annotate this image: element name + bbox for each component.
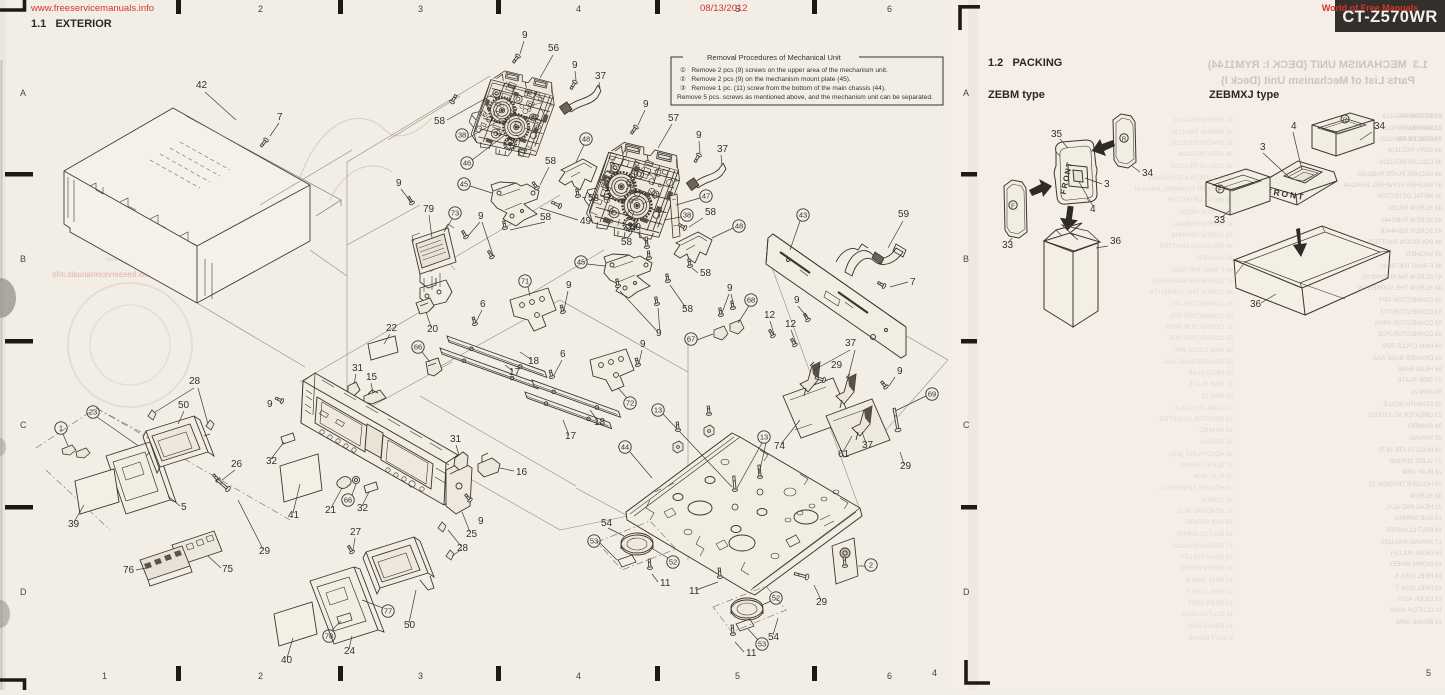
svg-text:Parts List of Mechanism Unit (: Parts List of Mechanism Unit (Deck I) (1221, 75, 1415, 87)
svg-text:A: A (20, 88, 26, 98)
svg-text:26: 26 (231, 459, 243, 470)
svg-text:ZEBMXJ type: ZEBMXJ type (1209, 89, 1279, 101)
svg-text:9: 9 (897, 366, 903, 377)
svg-text:21: 21 (325, 505, 337, 516)
svg-text:46: 46 (463, 159, 471, 168)
svg-text:13: 13 (654, 406, 662, 415)
svg-text:R: R (1343, 118, 1348, 124)
svg-text:11 CLUTCH ASSY: 11 CLUTCH ASSY (1180, 611, 1233, 618)
svg-text:49: 49 (580, 216, 592, 227)
svg-text:23 GREATER ADJUSTED: 23 GREATER ADJUSTED (1368, 412, 1442, 419)
svg-text:17 SPRING RXA1100: 17 SPRING RXA1100 (1171, 543, 1233, 550)
svg-text:53: 53 (590, 537, 598, 546)
svg-text:③ Remove 1 pc. (11) screw fr: ③ Remove 1 pc. (11) screw from the botto… (680, 84, 886, 92)
svg-text:34 SERV REC1108: 34 SERV REC1108 (1178, 151, 1233, 158)
svg-text:75: 75 (222, 564, 234, 575)
svg-text:24 SHIMRO: 24 SHIMRO (1408, 423, 1442, 430)
svg-text:53 CONNECTOR PCE: 53 CONNECTOR PCE (1378, 331, 1442, 338)
svg-text:36 SECURE PLATE RNB1451: 36 SECURE PLATE RNB1451 (1356, 171, 1442, 178)
svg-text:21 HEAD PAD ALYL: 21 HEAD PAD ALYL (1176, 508, 1233, 515)
svg-text:6: 6 (560, 349, 566, 360)
svg-text:7: 7 (910, 277, 916, 288)
svg-text:27 SLIDE SPRING: 27 SLIDE SPRING (1180, 462, 1233, 469)
svg-text:9: 9 (640, 339, 646, 350)
svg-text:43 SCREW RBH4418: 43 SCREW RBH4418 (1171, 232, 1233, 239)
svg-text:12: 12 (764, 310, 776, 321)
svg-text:9: 9 (566, 280, 572, 291)
svg-text:49: 49 (630, 222, 642, 233)
svg-text:08/13/2012: 08/13/2012 (700, 3, 748, 14)
svg-text:57: 57 (668, 113, 680, 124)
svg-text:25 SPRING: 25 SPRING (1200, 439, 1233, 446)
svg-text:68: 68 (747, 296, 755, 305)
svg-text:2: 2 (258, 4, 263, 14)
svg-text:9: 9 (478, 516, 484, 527)
svg-text:56 HEAD BASE: 56 HEAD BASE (1188, 370, 1233, 377)
svg-text:B: B (20, 254, 26, 264)
svg-text:16 GEAR PULLEY: 16 GEAR PULLEY (1180, 554, 1233, 561)
svg-text:52: 52 (772, 594, 780, 603)
svg-text:30 SCREW: 30 SCREW (1201, 497, 1233, 504)
svg-text:1: 1 (102, 671, 107, 681)
svg-text:35: 35 (1051, 129, 1063, 140)
svg-text:66: 66 (344, 496, 352, 505)
svg-text:58: 58 (540, 212, 552, 223)
svg-text:4: 4 (932, 668, 937, 678)
svg-text:26 HOLD PLATE (B R): 26 HOLD PLATE (B R) (1169, 451, 1233, 458)
svg-text:37: 37 (862, 440, 874, 451)
svg-text:5: 5 (1426, 668, 1431, 678)
svg-text:1.3 MECHANISM UNIT (DECK I: R: 1.3 MECHANISM UNIT (DECK I: RYM1144) (1208, 59, 1429, 71)
svg-text:74: 74 (774, 441, 786, 452)
svg-text:41 SCREW RBZ30: 41 SCREW RBZ30 (1388, 205, 1442, 212)
svg-text:45 WASHER: 45 WASHER (1405, 251, 1442, 258)
svg-text:52 CONNECTOR P8HS: 52 CONNECTOR P8HS (1166, 324, 1233, 331)
svg-text:27 SLIDE SPRING: 27 SLIDE SPRING (1389, 458, 1442, 465)
svg-text:44 POLISLION SHUTTER: 44 POLISLION SHUTTER (1368, 239, 1442, 246)
svg-text:1.2 PACKING: 1.2 PACKING (988, 57, 1062, 69)
svg-text:27: 27 (350, 527, 362, 538)
svg-text:76: 76 (123, 565, 135, 576)
svg-text:28: 28 (189, 376, 201, 387)
svg-text:50: 50 (404, 620, 416, 631)
svg-text:48: 48 (582, 135, 590, 144)
svg-text:9: 9 (572, 60, 578, 71)
svg-text:59: 59 (898, 209, 910, 220)
svg-text:24 SHIMRO: 24 SHIMRO (1199, 427, 1233, 434)
svg-text:46 F RING THE RB30: 46 F RING THE RB30 (1171, 267, 1233, 274)
svg-text:58 ARM 21: 58 ARM 21 (1410, 389, 1442, 396)
svg-text:9: 9 (643, 99, 649, 110)
svg-text:55 DRAWER BASE ASA: 55 DRAWER BASE ASA (1163, 359, 1233, 366)
svg-text:47: 47 (702, 192, 710, 201)
svg-text:18 BELT CLAMPER: 18 BELT CLAMPER (1385, 527, 1442, 534)
svg-text:71: 71 (521, 277, 529, 286)
svg-text:6: 6 (887, 4, 892, 14)
svg-text:56 HEAD BASE: 56 HEAD BASE (1397, 366, 1442, 373)
svg-text:72: 72 (626, 399, 634, 408)
svg-text:54: 54 (601, 518, 613, 529)
svg-text:31: 31 (352, 363, 364, 374)
svg-text:ZEBM type: ZEBM type (988, 89, 1045, 101)
svg-text:3: 3 (1260, 142, 1266, 153)
svg-text:36: 36 (1250, 299, 1262, 310)
svg-text:57 SIDE PLATE: 57 SIDE PLATE (1188, 381, 1233, 388)
svg-text:9: 9 (478, 211, 484, 222)
svg-text:10 BRAKE ARM: 10 BRAKE ARM (1188, 623, 1234, 630)
svg-text:48 SCREW THE SUPREHTW: 48 SCREW THE SUPREHTW (1149, 289, 1233, 296)
svg-text:11: 11 (689, 586, 700, 597)
svg-text:47 SCREW RM SUPPRESS: 47 SCREW RM SUPPRESS (1362, 274, 1442, 281)
svg-text:33: 33 (1002, 240, 1014, 251)
svg-text:Removal Procedures of Mechanic: Removal Procedures of Mechanical Unit (707, 53, 842, 62)
svg-text:19 SUB SPRING: 19 SUB SPRING (1185, 519, 1233, 526)
svg-text:12 IDLER ASSY: 12 IDLER ASSY (1187, 600, 1233, 607)
svg-text:47 SCREW RM SUPPRESS: 47 SCREW RM SUPPRESS (1153, 278, 1233, 285)
svg-text:44 POLISLION SHUTTER: 44 POLISLION SHUTTER (1159, 243, 1233, 250)
svg-text:15 WORM WHEEL: 15 WORM WHEEL (1179, 565, 1233, 572)
svg-text:11 CLUTCH ASSY: 11 CLUTCH ASSY (1389, 607, 1442, 614)
svg-text:18 BELT CLAMPER: 18 BELT CLAMPER (1176, 531, 1233, 538)
svg-text:9 SOFT BRAKE: 9 SOFT BRAKE (1397, 113, 1442, 120)
svg-text:16: 16 (516, 467, 528, 478)
svg-text:13 REEL DISK T: 13 REEL DISK T (1395, 585, 1442, 592)
svg-text:29: 29 (816, 597, 828, 608)
svg-text:51 CONNECTOR P75: 51 CONNECTOR P75 (1170, 313, 1233, 320)
svg-text:25: 25 (466, 529, 478, 540)
svg-text:69: 69 (928, 390, 936, 399)
svg-text:48 SCREW THE SUPREHTW: 48 SCREW THE SUPREHTW (1358, 285, 1442, 292)
svg-text:45: 45 (577, 258, 585, 267)
svg-text:66: 66 (414, 343, 422, 352)
svg-text:43 SCREW RBH4418: 43 SCREW RBH4418 (1380, 228, 1442, 235)
svg-text:5: 5 (181, 502, 187, 513)
svg-text:23: 23 (89, 408, 97, 417)
svg-text:18: 18 (528, 356, 540, 367)
svg-text:41 SCREW RBZ30: 41 SCREW RBZ30 (1179, 209, 1233, 216)
svg-text:18: 18 (594, 417, 606, 428)
svg-text:11: 11 (746, 648, 757, 659)
svg-text:79: 79 (423, 204, 435, 215)
svg-text:14 REEL DISK S: 14 REEL DISK S (1186, 577, 1233, 584)
svg-text:37 WASHER FLYWHEEL RA41144: 37 WASHER FLYWHEEL RA41144 (1343, 182, 1442, 189)
svg-text:42: 42 (196, 80, 208, 91)
svg-text:22: 22 (386, 323, 398, 334)
svg-text:22 AZIMUTH SCALE: 22 AZIMUTH SCALE (1174, 405, 1233, 412)
svg-text:53: 53 (758, 640, 766, 649)
svg-text:25 SPRING: 25 SPRING (1409, 435, 1442, 442)
svg-text:38: 38 (683, 211, 691, 220)
svg-text:14 REEL DISK S: 14 REEL DISK S (1395, 573, 1442, 580)
svg-text:7 MODE GEAR: 7 MODE GEAR (1398, 136, 1442, 143)
svg-text:42 SCREW RNB1441: 42 SCREW RNB1441 (1380, 217, 1442, 224)
svg-text:1.1 EXTERIOR: 1.1 EXTERIOR (31, 18, 112, 30)
svg-text:15: 15 (366, 372, 378, 383)
svg-text:58: 58 (700, 268, 712, 279)
svg-text:17: 17 (565, 431, 577, 442)
svg-text:D: D (963, 587, 970, 597)
svg-text:58: 58 (588, 193, 600, 204)
svg-text:35 COLLAR REA1103: 35 COLLAR REA1103 (1170, 163, 1233, 170)
svg-text:29 HOLDER TENSION 21: 29 HOLDER TENSION 21 (1368, 481, 1442, 488)
svg-text:3: 3 (418, 671, 423, 681)
svg-text:32 SPRING RBH1132: 32 SPRING RBH1132 (1171, 129, 1233, 136)
svg-text:37: 37 (595, 71, 607, 82)
svg-text:24: 24 (344, 646, 356, 657)
svg-text:28 PLAY ARM: 28 PLAY ARM (1402, 469, 1442, 476)
svg-text:12: 12 (785, 319, 797, 330)
svg-text:C: C (963, 420, 970, 430)
svg-text:30 SCREW: 30 SCREW (1410, 493, 1442, 500)
svg-text:13: 13 (760, 433, 768, 442)
svg-text:31: 31 (450, 434, 462, 445)
svg-text:6: 6 (480, 299, 486, 310)
svg-text:34 SERV REC1108: 34 SERV REC1108 (1387, 147, 1442, 154)
svg-text:4: 4 (576, 671, 581, 681)
svg-text:28 PLAY ARM: 28 PLAY ARM (1193, 473, 1233, 480)
svg-text:23 GREATER ADJUSTED: 23 GREATER ADJUSTED (1159, 416, 1233, 423)
svg-text:54 HAM CYCLE PPP: 54 HAM CYCLE PPP (1173, 347, 1233, 354)
svg-text:A: A (963, 88, 969, 98)
svg-text:17: 17 (509, 367, 521, 378)
svg-text:9 SOFT BRAKE: 9 SOFT BRAKE (1188, 635, 1233, 642)
svg-text:19 SUB SPRING: 19 SUB SPRING (1394, 515, 1442, 522)
svg-text:52: 52 (669, 558, 677, 567)
svg-text:51 CONNECTOR P75: 51 CONNECTOR P75 (1379, 309, 1442, 316)
svg-text:38 METAL DETECTOR: 38 METAL DETECTOR (1376, 193, 1442, 200)
svg-text:1: 1 (59, 424, 63, 433)
svg-text:58 ARM 21: 58 ARM 21 (1201, 393, 1233, 400)
svg-text:38: 38 (458, 131, 466, 140)
svg-text:29: 29 (259, 546, 271, 557)
svg-text:37 WASHER FLYWHEEL RA41144: 37 WASHER FLYWHEEL RA41144 (1134, 186, 1233, 193)
svg-text:28: 28 (457, 543, 469, 554)
svg-text:58: 58 (682, 304, 694, 315)
svg-text:50 CONNECTOR PPT: 50 CONNECTOR PPT (1379, 297, 1442, 304)
svg-text:77: 77 (384, 607, 392, 616)
svg-text:73: 73 (451, 209, 459, 218)
svg-text:42 SCREW RNB1441: 42 SCREW RNB1441 (1171, 221, 1233, 228)
svg-text:58: 58 (621, 237, 633, 248)
svg-text:67: 67 (687, 335, 695, 344)
svg-text:57 SIDE PLATE: 57 SIDE PLATE (1397, 377, 1442, 384)
svg-text:① Remove 2 pcs (9) screws o: ① Remove 2 pcs (9) screws on the upper a… (680, 66, 888, 74)
svg-text:29: 29 (900, 461, 912, 472)
svg-text:43: 43 (799, 211, 807, 220)
svg-text:38 METAL DETECTOR: 38 METAL DETECTOR (1167, 197, 1233, 204)
svg-text:29: 29 (831, 360, 843, 371)
svg-text:2: 2 (869, 561, 873, 570)
svg-text:9: 9 (267, 399, 273, 410)
svg-text:46 F RING THE RB30: 46 F RING THE RB30 (1380, 263, 1442, 270)
svg-text:58: 58 (545, 156, 557, 167)
svg-text:9: 9 (396, 178, 402, 189)
svg-text:② Remove 2 pcs (9) on the me: ② Remove 2 pcs (9) on the mechanism moun… (680, 75, 851, 83)
svg-text:9: 9 (656, 328, 662, 339)
svg-text:26 HOLD PLATE (B R): 26 HOLD PLATE (B R) (1378, 447, 1442, 454)
svg-text:54: 54 (768, 632, 780, 643)
svg-text:World of Free Manuals: World of Free Manuals (1322, 3, 1418, 13)
svg-text:7: 7 (277, 112, 283, 123)
svg-text:16 GEAR PULLEY: 16 GEAR PULLEY (1389, 550, 1442, 557)
svg-text:39: 39 (68, 519, 80, 530)
svg-text:F: F (1011, 204, 1015, 210)
svg-text:36: 36 (1110, 236, 1122, 247)
svg-text:3: 3 (418, 4, 423, 14)
svg-text:8 CAM GEAR: 8 CAM GEAR (1403, 125, 1442, 132)
svg-text:45 WASHER: 45 WASHER (1196, 255, 1233, 262)
svg-text:13 REEL DISK T: 13 REEL DISK T (1186, 589, 1233, 596)
svg-text:3: 3 (1104, 179, 1110, 190)
svg-text:2: 2 (258, 671, 263, 681)
svg-text:15 WORM WHEEL: 15 WORM WHEEL (1388, 561, 1442, 568)
svg-text:9: 9 (522, 30, 528, 41)
svg-text:5: 5 (735, 671, 740, 681)
svg-text:4: 4 (1291, 121, 1297, 132)
svg-text:37: 37 (717, 144, 729, 155)
svg-text:35 COLLAR REA1103: 35 COLLAR REA1103 (1379, 159, 1442, 166)
svg-text:50 CONNECTOR PPT: 50 CONNECTOR PPT (1170, 301, 1233, 308)
svg-text:9: 9 (727, 283, 733, 294)
svg-text:Remove 5 pcs. screws as mentio: Remove 5 pcs. screws as mentioned above,… (677, 94, 933, 101)
svg-text:11: 11 (660, 578, 671, 589)
svg-text:78: 78 (325, 632, 333, 641)
svg-text:33 SPACER RBH1120: 33 SPACER RBH1120 (1170, 140, 1233, 147)
svg-text:12 IDLER ASSY: 12 IDLER ASSY (1396, 596, 1442, 603)
svg-text:37: 37 (845, 338, 857, 349)
svg-text:40: 40 (281, 655, 293, 666)
svg-text:22 AZIMUTH SCALE: 22 AZIMUTH SCALE (1383, 401, 1442, 408)
svg-text:54 HAM CYCLE PPP: 54 HAM CYCLE PPP (1382, 343, 1442, 350)
svg-text:41: 41 (288, 510, 300, 521)
svg-text:36 SECURE PLATE RNB1451: 36 SECURE PLATE RNB1451 (1147, 175, 1233, 182)
svg-text:52 CONNECTOR P8HS: 52 CONNECTOR P8HS (1375, 320, 1442, 327)
svg-text:17 SPRING RXA1100: 17 SPRING RXA1100 (1380, 539, 1442, 546)
svg-text:50: 50 (178, 400, 190, 411)
svg-text:www.freeservicemanuals.info: www.freeservicemanuals.info (30, 3, 154, 14)
svg-text:31 SCREW RA-A119: 31 SCREW RA-A119 (1173, 117, 1233, 124)
svg-text:48: 48 (735, 222, 743, 231)
svg-text:D: D (20, 587, 27, 597)
svg-text:20: 20 (427, 324, 439, 335)
svg-text:55 DRAWER BASE ASA: 55 DRAWER BASE ASA (1372, 355, 1442, 362)
svg-text:R: R (1122, 137, 1127, 143)
svg-text:56: 56 (548, 43, 560, 54)
svg-text:4: 4 (576, 4, 581, 14)
svg-text:44: 44 (621, 443, 629, 452)
svg-text:B: B (963, 254, 969, 264)
svg-text:53 CONNECTOR PCE: 53 CONNECTOR PCE (1169, 335, 1233, 342)
svg-text:10 BRAKE ARM: 10 BRAKE ARM (1397, 619, 1443, 626)
svg-text:9: 9 (696, 130, 702, 141)
svg-text:21 HEAD PAD ALYL: 21 HEAD PAD ALYL (1385, 504, 1442, 511)
svg-text:45: 45 (460, 180, 468, 189)
svg-text:6: 6 (887, 671, 892, 681)
svg-text:C: C (20, 420, 27, 430)
svg-text:29 HOLDER TENSION 21: 29 HOLDER TENSION 21 (1159, 485, 1233, 492)
svg-text:9: 9 (794, 295, 800, 306)
svg-text:58: 58 (434, 116, 446, 127)
svg-text:58: 58 (705, 207, 717, 218)
